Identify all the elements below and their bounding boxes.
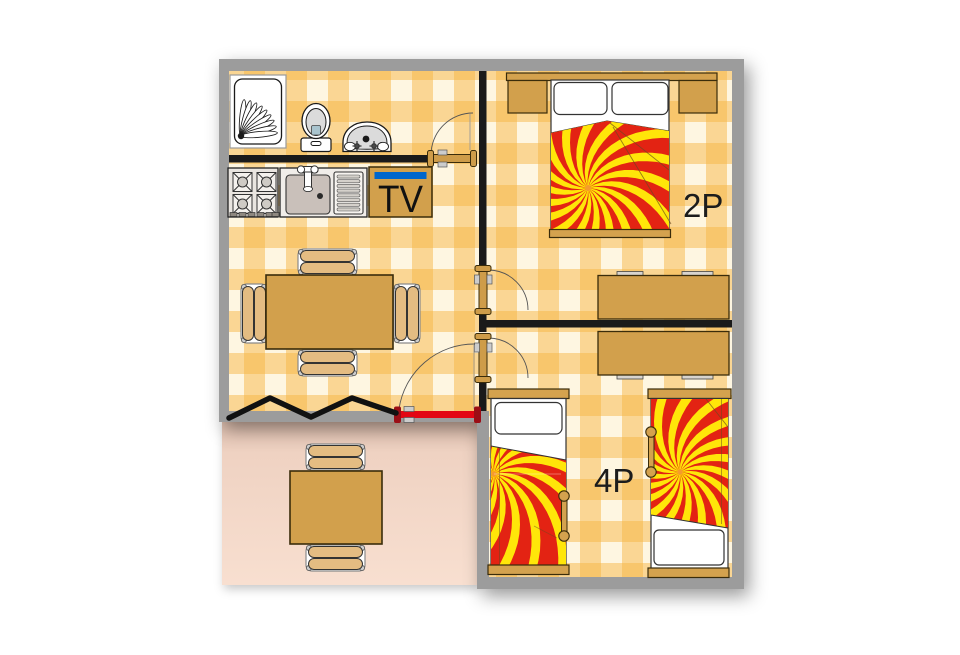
svg-text:4P: 4P [594, 462, 634, 499]
svg-text:TV: TV [378, 179, 424, 221]
svg-text:2P: 2P [683, 187, 723, 224]
